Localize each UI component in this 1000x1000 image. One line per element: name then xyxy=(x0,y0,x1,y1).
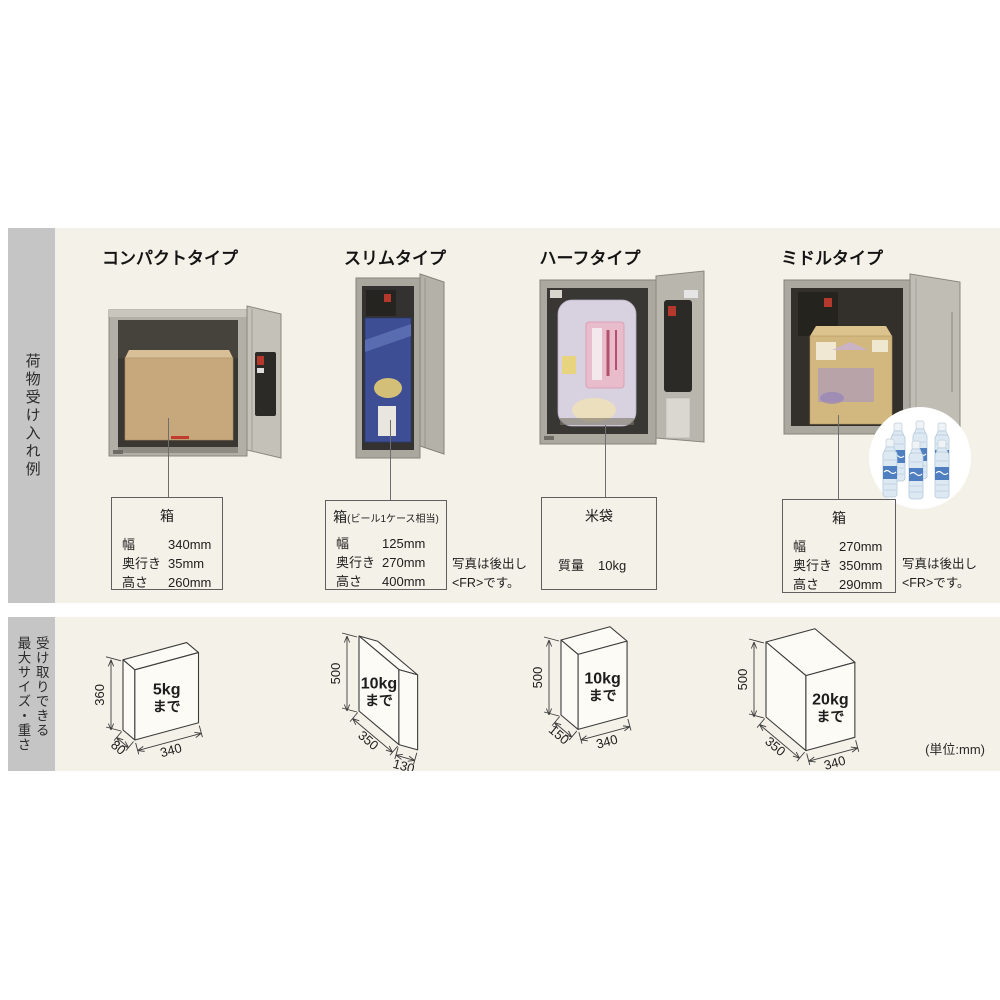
section-package-examples: 荷物受け入れ例 コンパクトタイプ スリムタイプ ハーフタイプ ミドルタイプ xyxy=(8,228,1000,603)
spec-item-name: 箱 xyxy=(783,508,895,528)
sidebar-label-max-size: 受け取りできる 最大サイズ・重さ xyxy=(13,636,49,752)
svg-text:500: 500 xyxy=(735,669,750,691)
max-size-diagram-half: 50015034010kgまで xyxy=(513,619,723,771)
spec-row: 奥行き35mm xyxy=(122,554,222,573)
spec-box-half: 米袋 質量10kg xyxy=(541,497,657,590)
leader-line-middle xyxy=(838,415,839,499)
spec-box-slim: 箱(ビール1ケース相当) 幅125mm 奥行き270mm 高さ400mm xyxy=(325,500,447,590)
spec-box-compact: 箱 幅340mm 奥行き35mm 高さ260mm xyxy=(111,497,223,590)
svg-text:まで: まで xyxy=(589,687,617,703)
svg-text:10kg: 10kg xyxy=(361,675,397,692)
spec-row: 質量10kg xyxy=(558,556,656,575)
svg-text:まで: まで xyxy=(153,698,181,714)
leader-line-slim xyxy=(390,420,391,500)
spec-box-middle: 箱 幅270mm 奥行き350mm 高さ290mm xyxy=(782,499,896,593)
svg-text:10kg: 10kg xyxy=(584,670,620,687)
half-cabinet-photo xyxy=(536,270,714,455)
sidebar-label-line1: 受け取りできる xyxy=(32,636,50,752)
photo-note-middle: 写真は後出し <FR>です。 xyxy=(902,555,997,594)
svg-text:130: 130 xyxy=(391,756,416,771)
svg-text:360: 360 xyxy=(92,684,107,706)
page: 荷物受け入れ例 コンパクトタイプ スリムタイプ ハーフタイプ ミドルタイプ xyxy=(0,0,1000,1000)
spec-row: 奥行き350mm xyxy=(793,556,895,575)
leader-line-half xyxy=(605,425,606,497)
leader-line-compact xyxy=(168,418,169,497)
photo-note-slim: 写真は後出し <FR>です。 xyxy=(452,555,547,594)
column-title-middle: ミドルタイプ xyxy=(781,244,881,269)
spec-row: 高さ260mm xyxy=(122,573,222,592)
svg-text:まで: まで xyxy=(365,692,393,708)
max-size-diagram-compact: 360803405kgまで xyxy=(83,625,293,771)
sidebar-label-examples: 荷物受け入れ例 xyxy=(21,353,41,479)
water-bottles-inset-photo xyxy=(868,406,972,510)
sidebar-package-examples: 荷物受け入れ例 xyxy=(8,228,55,603)
svg-text:80: 80 xyxy=(108,737,129,758)
svg-text:20kg: 20kg xyxy=(812,691,848,708)
column-title-compact: コンパクトタイプ xyxy=(100,244,240,269)
sidebar-max-size: 受け取りできる 最大サイズ・重さ xyxy=(8,617,55,771)
svg-text:500: 500 xyxy=(328,663,343,685)
section-max-size: 受け取りできる 最大サイズ・重さ 360803405kgまで 500350130… xyxy=(8,617,1000,771)
spec-row: 幅270mm xyxy=(793,537,895,556)
spec-row: 高さ290mm xyxy=(793,575,895,594)
svg-text:340: 340 xyxy=(822,753,847,771)
spec-row: 高さ400mm xyxy=(336,572,446,591)
svg-text:340: 340 xyxy=(159,740,184,760)
spec-item-name: 米袋 xyxy=(542,506,656,526)
svg-text:500: 500 xyxy=(530,667,545,689)
slim-cabinet-photo xyxy=(350,270,450,465)
column-title-slim: スリムタイプ xyxy=(340,244,450,269)
compact-cabinet-photo xyxy=(105,300,285,462)
spec-row: 幅340mm xyxy=(122,535,222,554)
unit-note: (単位:mm) xyxy=(865,739,985,758)
svg-text:150: 150 xyxy=(546,722,572,747)
svg-text:まで: まで xyxy=(816,708,844,724)
max-size-diagram-slim: 50035013010kgまで xyxy=(304,617,514,771)
svg-text:350: 350 xyxy=(762,734,788,759)
spec-item-name: 箱(ビール1ケース相当) xyxy=(326,507,446,527)
column-title-half: ハーフタイプ xyxy=(535,244,645,269)
spec-row: 幅125mm xyxy=(336,534,446,553)
spec-row: 奥行き270mm xyxy=(336,553,446,572)
svg-text:340: 340 xyxy=(594,732,619,752)
svg-text:350: 350 xyxy=(355,728,381,753)
spec-item-name: 箱 xyxy=(112,506,222,526)
sidebar-label-line2: 最大サイズ・重さ xyxy=(13,636,31,752)
svg-text:5kg: 5kg xyxy=(153,681,181,698)
